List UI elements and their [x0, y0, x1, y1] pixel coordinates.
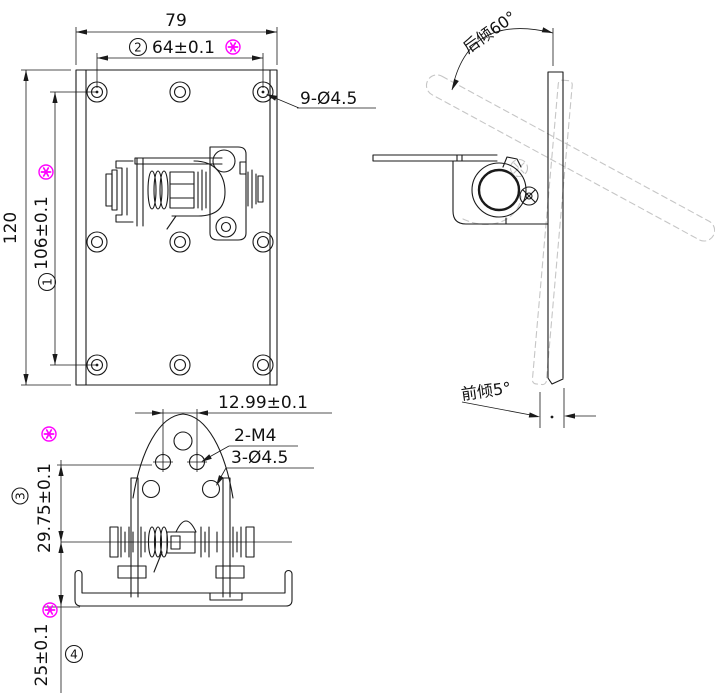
critical-flag-icon [39, 165, 53, 179]
dome-bracket-outline [133, 414, 233, 498]
callout-thread-text: 2-M4 [234, 426, 276, 446]
dim-bolt-span-h: 2 64±0.1 [97, 38, 263, 88]
dim-back-tilt: 后倾60° [450, 7, 554, 91]
plate-outline [76, 70, 277, 385]
side-view: 后倾60° 前倾5° [373, 7, 715, 428]
dim-width-text: 79 [165, 11, 187, 31]
callout-holes: 9-Ø4.5 [265, 89, 376, 109]
cad-drawing-sheet: 79 2 64±0.1 120 106±0.1 [0, 0, 715, 698]
dim-slot-pitch-text: 12.99±0.1 [218, 393, 308, 413]
ghost-plate-5 [532, 80, 573, 385]
dim-axis-height-text: 29.75±0.1 [35, 463, 55, 553]
pivot-bore [479, 170, 519, 210]
callout-holes-bottom-text: 3-Ø4.5 [231, 448, 288, 468]
ref-balloon-4-text: 4 [70, 648, 78, 662]
drawing-canvas: 79 2 64±0.1 120 106±0.1 [0, 0, 715, 698]
hinge-assembly-bottom [61, 478, 292, 606]
dim-front-tilt: 前倾5° [460, 378, 596, 428]
plate-holes [87, 82, 273, 375]
dim-height-text: 120 [1, 212, 21, 244]
dim-base-offset-text: 25±0.1 [32, 624, 52, 687]
dim-bolt-span-v-text: 106±0.1 [32, 196, 52, 270]
dim-bolt-span-h-text: 64±0.1 [152, 38, 215, 58]
clamp-tab [503, 157, 521, 167]
critical-flag-icon [42, 427, 56, 441]
callout-holes-bottom: 3-Ø4.5 [214, 448, 314, 487]
ghost-bracket-hint [463, 196, 521, 225]
dome-top-hole [174, 432, 192, 450]
front-tilt-label: 前倾5° [460, 378, 512, 404]
callout-holes-text: 9-Ø4.5 [300, 89, 357, 109]
front-view: 79 2 64±0.1 120 106±0.1 [1, 11, 376, 385]
critical-flag-icon [226, 40, 240, 54]
bottom-view: 12.99±0.1 2-M4 3-Ø4.5 29.75±0.1 [12, 393, 332, 693]
pivot-screw [520, 187, 538, 205]
back-tilt-label: 后倾60° [459, 7, 519, 57]
dim-slot-pitch: 12.99±0.1 [135, 393, 332, 456]
spring-coil [148, 171, 168, 209]
dome-hole-left [143, 481, 160, 498]
base-plate [75, 571, 292, 607]
hinge-mechanism-front [106, 147, 263, 240]
ref-balloon-3-text: 3 [14, 492, 28, 500]
ref-balloon-1-text: 1 [41, 278, 55, 286]
plate-fold-lines [86, 70, 270, 385]
mount-flange-edge [373, 155, 497, 161]
m4-threaded-holes [153, 452, 207, 472]
ref-balloon-2-text: 2 [134, 41, 142, 55]
ghost-arm-60 [423, 71, 715, 245]
critical-flag-icon [43, 603, 57, 617]
